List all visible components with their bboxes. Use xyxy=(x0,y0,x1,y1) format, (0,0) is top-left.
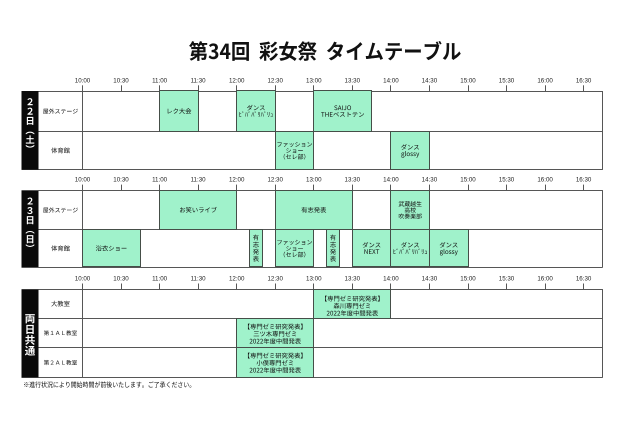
svg-text:16:30: 16:30 xyxy=(576,276,592,283)
svg-text:11:30: 11:30 xyxy=(191,177,207,184)
svg-text:14:00: 14:00 xyxy=(383,177,399,184)
svg-text:11:30: 11:30 xyxy=(191,77,207,84)
svg-text:10:00: 10:00 xyxy=(75,77,91,84)
svg-text:15:00: 15:00 xyxy=(460,77,476,84)
svg-text:15:30: 15:30 xyxy=(499,77,515,84)
svg-text:10:30: 10:30 xyxy=(113,77,129,84)
svg-text:12:30: 12:30 xyxy=(267,77,283,84)
svg-text:12:00: 12:00 xyxy=(229,77,245,84)
svg-text:10:30: 10:30 xyxy=(113,276,129,283)
svg-text:13:30: 13:30 xyxy=(345,276,361,283)
svg-text:12:00: 12:00 xyxy=(229,276,245,283)
svg-text:15:00: 15:00 xyxy=(460,276,476,283)
svg-text:10:00: 10:00 xyxy=(75,177,91,184)
svg-text:13:00: 13:00 xyxy=(306,77,322,84)
svg-text:16:30: 16:30 xyxy=(576,177,592,184)
svg-text:11:00: 11:00 xyxy=(152,177,168,184)
svg-text:13:30: 13:30 xyxy=(345,177,361,184)
svg-text:10:30: 10:30 xyxy=(113,177,129,184)
svg-text:11:30: 11:30 xyxy=(191,276,207,283)
svg-text:14:30: 14:30 xyxy=(422,177,438,184)
svg-text:12:30: 12:30 xyxy=(267,177,283,184)
svg-text:16:30: 16:30 xyxy=(576,77,592,84)
svg-text:10:00: 10:00 xyxy=(75,276,91,283)
svg-text:15:00: 15:00 xyxy=(460,177,476,184)
svg-text:16:00: 16:00 xyxy=(537,77,553,84)
svg-text:11:00: 11:00 xyxy=(152,276,168,283)
svg-text:16:00: 16:00 xyxy=(537,177,553,184)
svg-text:12:30: 12:30 xyxy=(267,276,283,283)
svg-text:13:30: 13:30 xyxy=(345,77,361,84)
svg-text:14:30: 14:30 xyxy=(422,276,438,283)
svg-text:14:00: 14:00 xyxy=(383,77,399,84)
svg-text:12:00: 12:00 xyxy=(229,177,245,184)
svg-text:13:00: 13:00 xyxy=(306,177,322,184)
svg-text:13:00: 13:00 xyxy=(306,276,322,283)
svg-text:14:00: 14:00 xyxy=(383,276,399,283)
svg-text:11:00: 11:00 xyxy=(152,77,168,84)
svg-text:15:30: 15:30 xyxy=(499,177,515,184)
svg-text:15:30: 15:30 xyxy=(499,276,515,283)
svg-text:14:30: 14:30 xyxy=(422,77,438,84)
svg-text:16:00: 16:00 xyxy=(537,276,553,283)
